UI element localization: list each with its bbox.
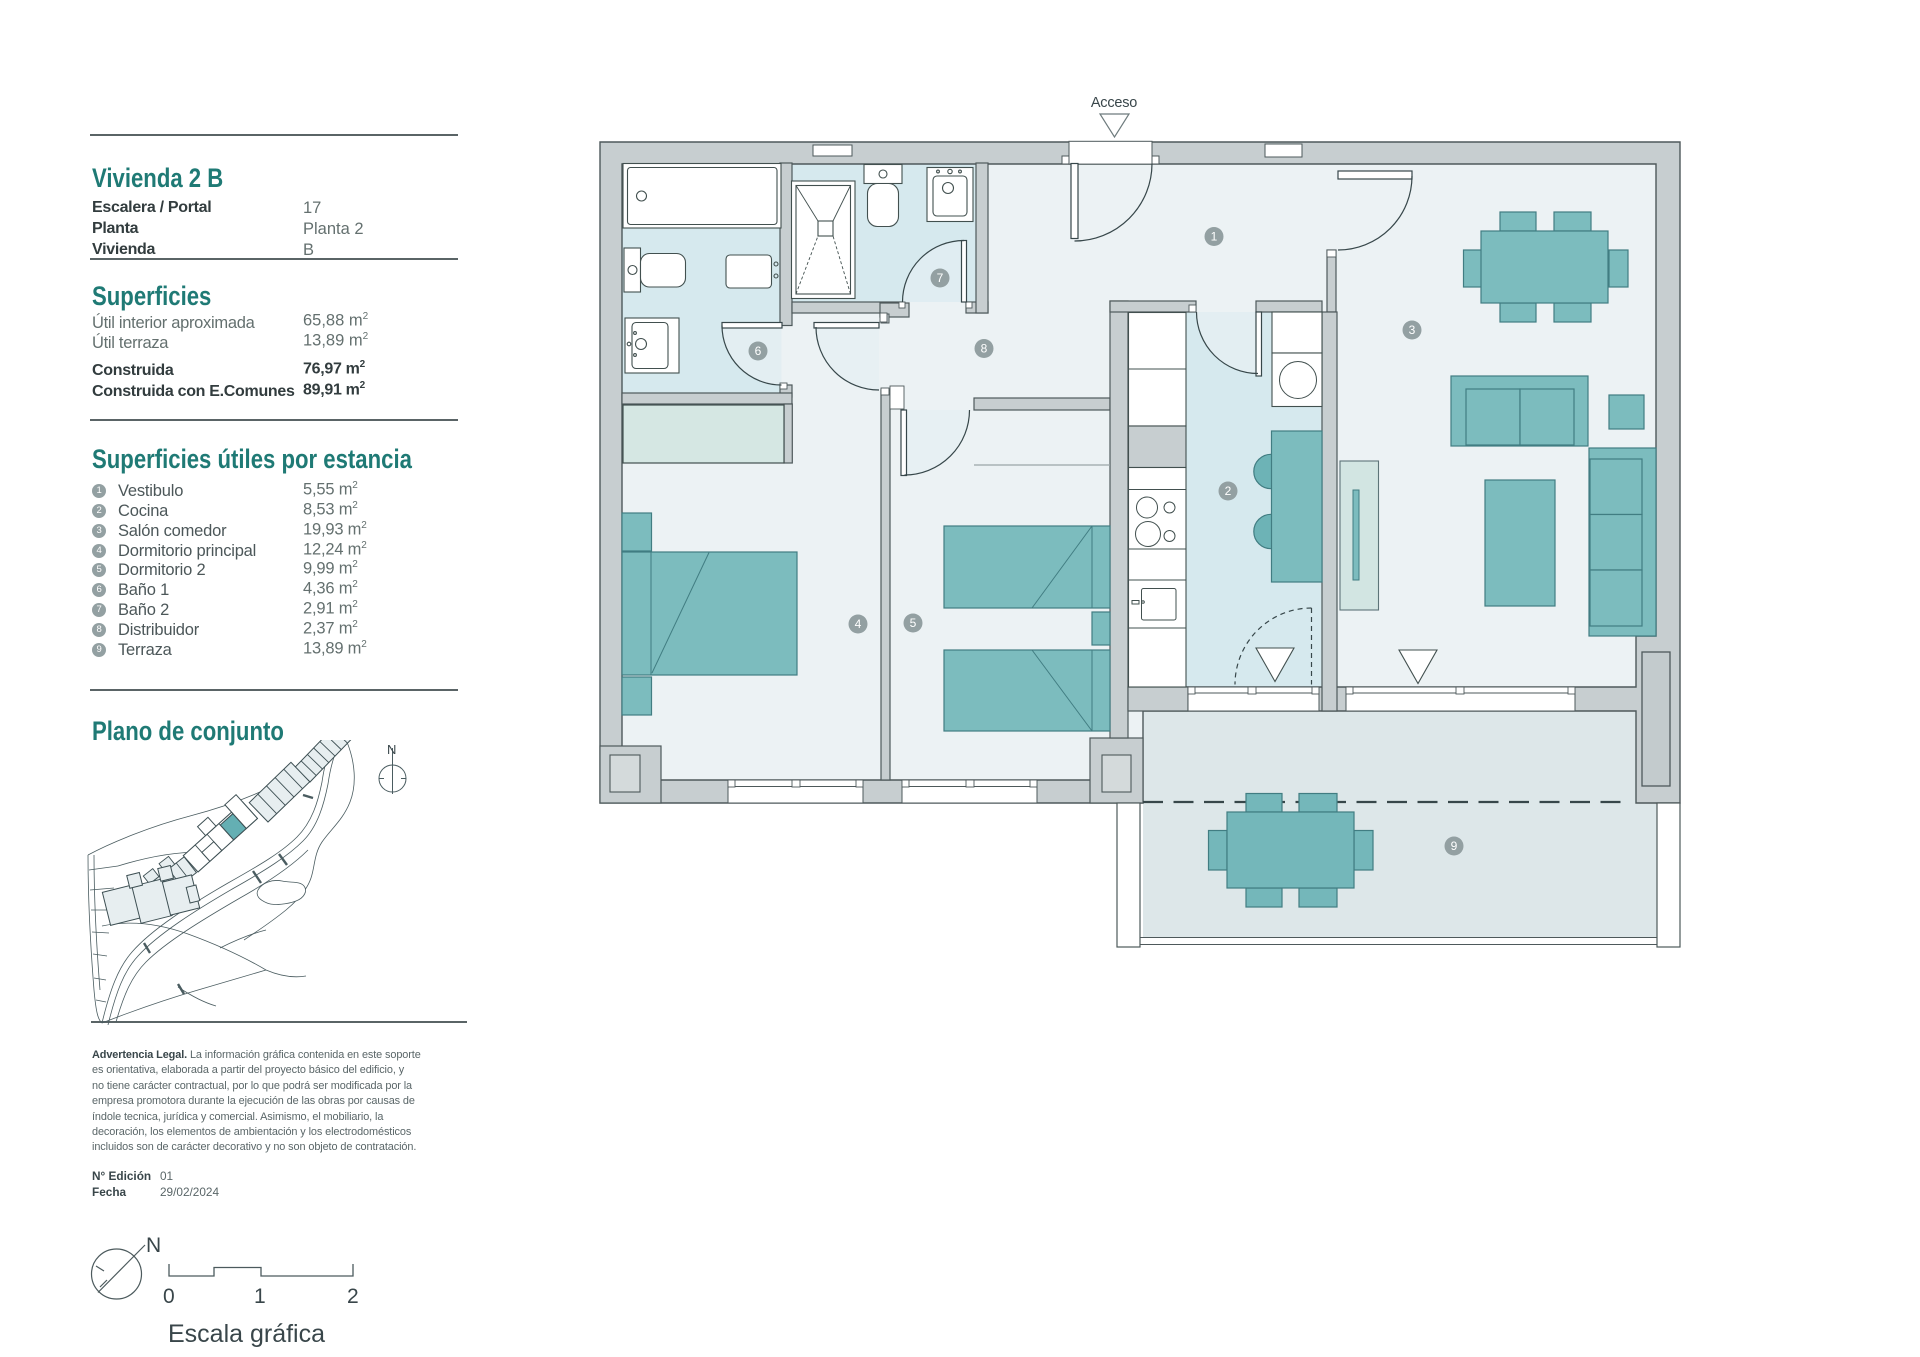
svg-text:7: 7: [937, 271, 944, 285]
svg-text:2: 2: [347, 1285, 359, 1308]
svg-text:9: 9: [1451, 839, 1458, 853]
svg-text:1: 1: [1211, 230, 1218, 244]
svg-text:5: 5: [910, 616, 917, 630]
svg-text:Escala gráfica: Escala gráfica: [168, 1320, 325, 1348]
svg-text:8: 8: [981, 342, 988, 356]
svg-text:0: 0: [163, 1285, 175, 1308]
svg-text:6: 6: [755, 344, 762, 358]
svg-text:N: N: [146, 1234, 161, 1257]
svg-text:1: 1: [254, 1285, 266, 1308]
svg-text:4: 4: [855, 617, 862, 631]
svg-text:3: 3: [1409, 323, 1416, 337]
svg-text:Acceso: Acceso: [1091, 95, 1137, 111]
svg-text:N: N: [387, 742, 396, 757]
svg-text:2: 2: [1225, 484, 1232, 498]
